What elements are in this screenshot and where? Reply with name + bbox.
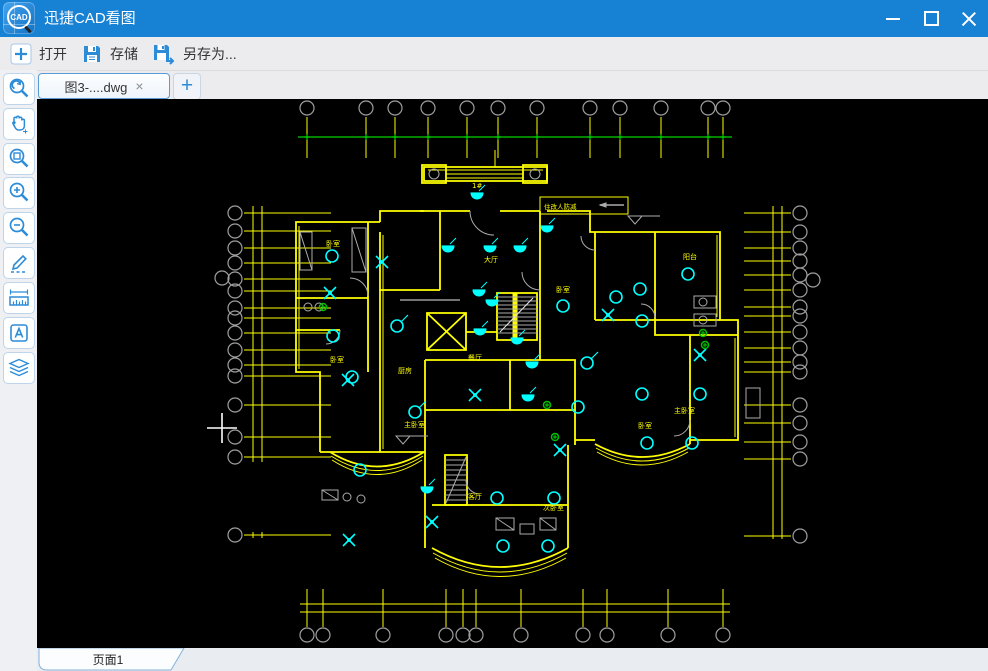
text-icon	[7, 321, 31, 345]
text-button[interactable]	[3, 317, 35, 349]
page-tab-label: 页面1	[38, 651, 178, 668]
save-as-icon	[152, 43, 176, 65]
open-label: 打开	[39, 44, 67, 64]
svg-text:阳台: 阳台	[683, 252, 697, 261]
zoom-extents-button[interactable]	[3, 73, 35, 105]
save-as-label: 另存为...	[183, 44, 237, 64]
measure-button[interactable]	[3, 282, 35, 314]
save-label: 存储	[110, 44, 138, 64]
svg-text:住改人防减: 住改人防减	[544, 202, 577, 211]
svg-text:卧室: 卧室	[638, 421, 652, 430]
window-title: 迅捷CAD看图	[44, 0, 136, 37]
pan-hand-icon	[7, 112, 31, 136]
pencil-icon	[7, 251, 31, 275]
save-button[interactable]: 存储	[77, 41, 142, 67]
minimize-button[interactable]	[874, 0, 912, 37]
app-logo-icon: CAD	[3, 2, 35, 34]
logo-magnifier-handle	[24, 26, 32, 34]
svg-text:主卧室: 主卧室	[674, 406, 695, 415]
svg-text:1#: 1#	[472, 182, 482, 190]
close-button[interactable]	[950, 0, 988, 37]
toolbar: 打开 存储 另存为...	[0, 37, 988, 71]
maximize-icon	[924, 11, 939, 26]
minimize-icon	[886, 18, 900, 20]
cad-canvas[interactable]: 1#卧室卧室大厅厨房餐厅卧室阳台主卧室主卧室客厅次卧室卧室住改人防减	[37, 99, 988, 648]
svg-text:卧室: 卧室	[330, 355, 344, 364]
app-window: CAD 迅捷CAD看图 打开 存储 另存为...	[0, 0, 988, 671]
draw-button[interactable]	[3, 247, 35, 279]
save-icon	[81, 43, 103, 65]
zoom-extents-icon	[7, 77, 31, 101]
statusbar: 页面1	[37, 648, 988, 671]
zoom-window-icon	[7, 147, 31, 171]
zoom-out-button[interactable]	[3, 212, 35, 244]
svg-text:卧室: 卧室	[556, 285, 570, 294]
page-tab[interactable]: 页面1	[38, 648, 188, 671]
drawing-viewport[interactable]: 1#卧室卧室大厅厨房餐厅卧室阳台主卧室主卧室客厅次卧室卧室住改人防减	[37, 99, 988, 648]
svg-text:大厅: 大厅	[484, 255, 498, 264]
layers-icon	[7, 356, 31, 380]
logo-lens: CAD	[7, 5, 31, 29]
open-button[interactable]: 打开	[6, 41, 71, 67]
zoom-out-icon	[7, 216, 31, 240]
layers-button[interactable]	[3, 352, 35, 384]
close-icon	[961, 11, 977, 27]
window-controls	[874, 0, 988, 37]
svg-text:卧室: 卧室	[326, 239, 340, 248]
svg-text:厨房: 厨房	[398, 366, 412, 375]
svg-text:主卧室: 主卧室	[404, 420, 425, 429]
svg-text:餐厅: 餐厅	[468, 353, 482, 362]
zoom-in-button[interactable]	[3, 177, 35, 209]
tool-sidebar	[0, 70, 37, 671]
svg-text:次卧室: 次卧室	[543, 503, 564, 512]
document-tabstrip: 图3-....dwg × +	[37, 71, 988, 99]
plus-box-icon	[10, 43, 32, 65]
new-tab-button[interactable]: +	[173, 73, 201, 100]
titlebar: CAD 迅捷CAD看图	[0, 0, 988, 37]
document-tab[interactable]: 图3-....dwg ×	[38, 73, 170, 99]
maximize-button[interactable]	[912, 0, 950, 37]
save-as-button[interactable]: 另存为...	[148, 41, 241, 67]
ruler-icon	[7, 286, 31, 310]
zoom-in-icon	[7, 181, 31, 205]
zoom-window-button[interactable]	[3, 143, 35, 175]
svg-text:客厅: 客厅	[468, 492, 482, 501]
tab-close-icon[interactable]: ×	[135, 79, 143, 93]
pan-button[interactable]	[3, 108, 35, 140]
document-tab-label: 图3-....dwg	[64, 77, 127, 96]
